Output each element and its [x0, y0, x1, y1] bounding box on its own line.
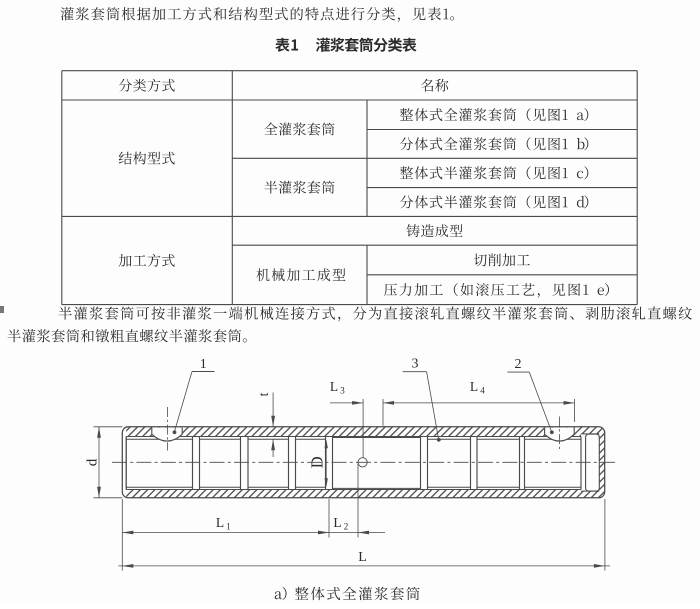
- svg-text:D: D: [308, 456, 327, 468]
- svg-text:1: 1: [200, 357, 207, 372]
- svg-text:d: d: [85, 458, 101, 466]
- svg-text:3: 3: [340, 386, 345, 396]
- svg-text:L: L: [333, 515, 341, 530]
- svg-text:L: L: [216, 515, 224, 530]
- svg-text:L: L: [330, 379, 338, 394]
- svg-text:L: L: [358, 550, 367, 565]
- svg-text:2: 2: [515, 357, 522, 372]
- svg-text:L: L: [470, 379, 478, 394]
- svg-text:1: 1: [226, 522, 231, 532]
- svg-text:4: 4: [480, 386, 485, 396]
- svg-text:3: 3: [412, 357, 419, 372]
- svg-text:t: t: [256, 392, 271, 396]
- svg-text:2: 2: [344, 522, 349, 532]
